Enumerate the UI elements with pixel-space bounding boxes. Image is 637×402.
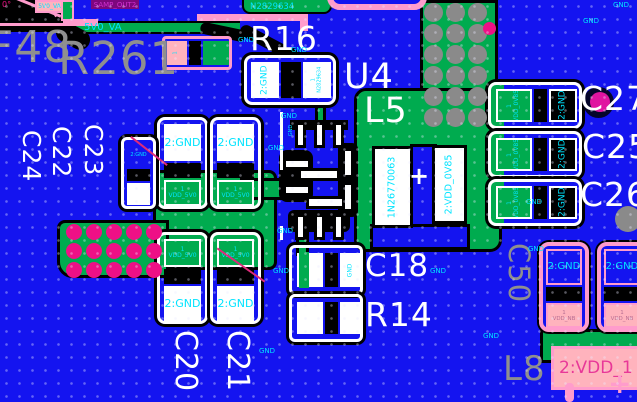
small-cap-gap bbox=[127, 169, 150, 181]
r16-pad-2-label: 2:GND bbox=[260, 65, 270, 94]
pink-cap-gap bbox=[546, 287, 582, 301]
c20-pad-2-label: 2:GND bbox=[165, 298, 201, 309]
u4-pad-net-label: GND bbox=[289, 125, 294, 136]
gnd-via-grid[interactable] bbox=[468, 45, 487, 64]
c25-pad-1-label: 1 VDD_0V85 bbox=[507, 139, 521, 171]
c18-pad-2[interactable]: GND bbox=[340, 253, 361, 287]
cap-pad-gap bbox=[164, 163, 201, 178]
component-r14[interactable] bbox=[289, 294, 363, 342]
pad-5v0-va[interactable]: 5V0_VA bbox=[35, 0, 64, 13]
net-label-gnd: GND bbox=[291, 47, 307, 54]
component-c27[interactable]: 1 VDD_0V85 2:GND bbox=[488, 82, 582, 129]
u4-pad-c1[interactable] bbox=[298, 168, 340, 181]
c27-pad-gap bbox=[534, 89, 547, 122]
c25-pad-2[interactable]: 2:GND bbox=[549, 138, 577, 171]
pink-cap-net: VDD_NB bbox=[611, 316, 634, 322]
small-cap-pad-2[interactable] bbox=[127, 183, 150, 205]
pad-5v0-va-label: 5V0_VA bbox=[38, 4, 61, 10]
designator-c20[interactable]: C20 bbox=[170, 330, 200, 392]
pink-via-grid[interactable] bbox=[86, 262, 102, 278]
cap-pad-gnd-label: 2:GND bbox=[218, 137, 254, 148]
c25-pad-1[interactable]: 1 VDD_0V85 bbox=[496, 138, 532, 171]
u4-pad-l2[interactable] bbox=[283, 184, 311, 196]
small-cap-pad-gnd[interactable]: 2:GND bbox=[127, 143, 150, 167]
pink-bar-bottom[interactable] bbox=[565, 383, 574, 402]
component-pink-cap-2[interactable]: 2:GND 1 VDD_NB bbox=[597, 242, 637, 332]
samp-out2-label: SAMP_OUT2 bbox=[94, 1, 137, 9]
cap-pad-gnd[interactable]: 2:GND bbox=[217, 124, 254, 161]
pink-cap-gnd-label: 2:GND bbox=[606, 262, 637, 272]
c20-pad-2[interactable]: 2:GND bbox=[164, 286, 201, 321]
pink-via-grid[interactable] bbox=[66, 224, 82, 240]
gnd-via-grid[interactable] bbox=[424, 24, 443, 43]
cap-pad-gnd[interactable]: 2:GND bbox=[164, 124, 201, 161]
r16-pad-1-label: 1 N2829634 bbox=[311, 67, 323, 93]
net-label-gnd: GND bbox=[259, 348, 275, 355]
pink-cap-gnd-label: 2:GND bbox=[548, 262, 581, 272]
net-label-n2829634: N2829634 bbox=[250, 3, 294, 12]
net-label-5v0-va: 5V0_VA bbox=[84, 23, 122, 33]
component-pink-cap-1[interactable]: 2:GND 1 VDD_NB bbox=[539, 242, 589, 332]
net-label-gnd: GND bbox=[613, 2, 629, 9]
c20-pad-1[interactable]: 1 VDD_5V0 bbox=[164, 239, 201, 267]
r261-pad-2[interactable] bbox=[203, 41, 229, 65]
c26-pad-2-label: 2:GND bbox=[558, 188, 568, 217]
designator-c21[interactable]: C21 bbox=[222, 330, 252, 392]
u4-pad-b2[interactable] bbox=[314, 214, 325, 240]
pink-via-grid[interactable] bbox=[86, 243, 102, 259]
component-small-cap[interactable]: 2:GND bbox=[121, 137, 156, 209]
designator-l5[interactable]: L5 bbox=[364, 94, 408, 129]
designator-c24[interactable]: C24 bbox=[19, 130, 44, 182]
net-label-gnd: GND bbox=[238, 37, 254, 44]
pink-cap-pad-gnd[interactable]: 2:GND bbox=[604, 249, 637, 285]
designator-u4[interactable]: U4 bbox=[344, 60, 394, 95]
component-c20[interactable]: 1 VDD_5V0 2:GND bbox=[157, 232, 208, 324]
cap-pad-gnd-label: 2:GND bbox=[165, 137, 201, 148]
l5-pad-1-label: 1N26770063 bbox=[387, 156, 398, 218]
copper-stripe-c18[interactable] bbox=[299, 252, 309, 288]
designator-c18[interactable]: C18 bbox=[365, 251, 429, 282]
r14-pad-gap bbox=[325, 302, 338, 334]
net-label-gnd: GND bbox=[528, 246, 544, 253]
c25-pad-gap bbox=[534, 138, 547, 171]
r14-pad-1[interactable] bbox=[297, 302, 323, 334]
pink-via-grid[interactable] bbox=[126, 262, 142, 278]
designator-c22[interactable]: C22 bbox=[49, 126, 74, 178]
net-label-gnd: GND bbox=[583, 18, 599, 25]
pad-small-green[interactable] bbox=[61, 0, 74, 21]
pink-cap-pad-vdd[interactable]: 1 VDD_NB bbox=[546, 303, 582, 328]
pink-cap-gap bbox=[604, 287, 637, 301]
c27-pad-1-label: 1 VDD_0V85 bbox=[507, 90, 521, 122]
pink-outline-top[interactable] bbox=[327, 0, 427, 10]
gnd-via-grid[interactable] bbox=[446, 87, 465, 106]
c26-pad-1-label: 1 VDD_0V85 bbox=[507, 187, 521, 219]
gnd-via-grid[interactable] bbox=[446, 3, 465, 22]
component-c25[interactable]: 1 VDD_0V85 2:GND bbox=[488, 131, 582, 178]
small-cap-gnd-label: 2:GND bbox=[130, 153, 146, 158]
cap-pad-vdd[interactable]: 1 VDD_5V0 bbox=[217, 180, 254, 206]
gnd-via-grid[interactable] bbox=[424, 66, 443, 85]
designator-r261[interactable]: R261 bbox=[58, 36, 179, 81]
gnd-via-grid[interactable] bbox=[424, 108, 443, 127]
u4-pad-r1[interactable] bbox=[342, 148, 354, 178]
gnd-via-grid[interactable] bbox=[468, 87, 487, 106]
c18-pad-gap bbox=[325, 253, 338, 287]
net-label-gnd: GND bbox=[273, 268, 289, 275]
pcb-canvas: 5V0_VA SAMP_OUT2 1 2:GND 1 N2829634 bbox=[0, 0, 637, 402]
u4-pad-b1[interactable] bbox=[295, 214, 306, 240]
gnd-via-grid[interactable] bbox=[468, 108, 487, 127]
magenta-via-edge[interactable] bbox=[483, 22, 496, 35]
u4-pad-b3[interactable] bbox=[333, 214, 344, 240]
pink-via-grid[interactable] bbox=[106, 243, 122, 259]
c27-pad-1[interactable]: 1 VDD_0V85 bbox=[496, 89, 532, 122]
c20-pad-gap bbox=[164, 269, 201, 284]
c25-pad-2-label: 2:GND bbox=[558, 140, 568, 169]
r14-pad-2[interactable] bbox=[340, 302, 361, 334]
cap-pad-net: VDD_5V0 bbox=[221, 193, 249, 199]
l5-pad-2[interactable]: 2:VDD_0V85 bbox=[432, 145, 467, 224]
pink-cap-pad-vdd[interactable]: 1 VDD_NB bbox=[604, 303, 637, 328]
c21-pad-2-label: 2:GND bbox=[218, 298, 254, 309]
r16-pad-1[interactable]: 1 N2829634 bbox=[303, 62, 331, 98]
r16-pad-gap bbox=[281, 62, 301, 98]
gnd-via-grid[interactable] bbox=[446, 24, 465, 43]
u4-pad-t1[interactable] bbox=[295, 122, 306, 148]
cap-pad-net: VDD_5V0 bbox=[168, 193, 196, 199]
c26-pad-2[interactable]: 2:GND bbox=[549, 186, 577, 219]
gnd-via-grid[interactable] bbox=[468, 66, 487, 85]
u4-pad-t3[interactable] bbox=[333, 122, 344, 148]
pink-via-grid[interactable] bbox=[66, 243, 82, 259]
designator-c25[interactable]: C25 bbox=[582, 130, 637, 163]
cap-pad-gap bbox=[217, 163, 254, 178]
c27-pad-2[interactable]: 2:GND bbox=[549, 89, 577, 122]
l5-pad-2-label: 2:VDD_0V85 bbox=[444, 155, 455, 215]
net-label-gnd: GND bbox=[281, 113, 297, 120]
designator-r14[interactable]: R14 bbox=[365, 298, 433, 331]
gnd-via-grid[interactable] bbox=[424, 87, 443, 106]
pink-cap-pad-gnd[interactable]: 2:GND bbox=[546, 249, 582, 285]
l8-polarity-mark: + bbox=[608, 370, 631, 398]
cap-pad-net: VDD_5V0 bbox=[168, 253, 196, 259]
gnd-via-grid[interactable] bbox=[424, 45, 443, 64]
designator-l8[interactable]: L8 bbox=[503, 352, 546, 386]
gnd-via-grid[interactable] bbox=[446, 108, 465, 127]
component-r16[interactable]: 2:GND 1 N2829634 bbox=[244, 55, 336, 105]
gnd-via-grid[interactable] bbox=[446, 45, 465, 64]
samp-out2-box[interactable]: SAMP_OUT2 bbox=[91, 0, 139, 9]
designator-c27[interactable]: C27 bbox=[580, 82, 637, 115]
c18-pad-2-label: GND bbox=[347, 263, 354, 277]
designator-c23[interactable]: C23 bbox=[81, 124, 106, 176]
u4-pad-t2[interactable] bbox=[314, 122, 325, 148]
net-label-gnd: GND bbox=[483, 333, 499, 340]
net-label-gnd: GND bbox=[526, 199, 542, 206]
gnd-via-grid[interactable] bbox=[424, 3, 443, 22]
pink-cap-net: VDD_NB bbox=[553, 316, 576, 322]
pink-via-grid[interactable] bbox=[66, 262, 82, 278]
c27-pad-2-label: 2:GND bbox=[558, 91, 568, 120]
cap-pad-vdd[interactable]: 1 VDD_5V0 bbox=[164, 180, 201, 206]
pink-via-grid[interactable] bbox=[126, 224, 142, 240]
origin-marker: 0° bbox=[2, 0, 11, 9]
pink-via-grid[interactable] bbox=[146, 262, 162, 278]
pink-via-grid[interactable] bbox=[126, 243, 142, 259]
l5-polarity-mark: + bbox=[409, 164, 429, 188]
designator-r16[interactable]: R16 bbox=[250, 22, 318, 55]
net-label-gnd: GND bbox=[430, 268, 446, 275]
component-cap-row1-right[interactable]: 2:GND 1 VDD_5V0 bbox=[210, 117, 261, 209]
pink-via-grid[interactable] bbox=[106, 224, 122, 240]
r261-pad-gap bbox=[189, 41, 201, 65]
r16-pad-2[interactable]: 2:GND bbox=[251, 62, 279, 98]
net-label-gnd: GND bbox=[268, 145, 284, 152]
pink-via-grid[interactable] bbox=[146, 243, 162, 259]
gnd-via-grid[interactable] bbox=[446, 66, 465, 85]
pink-via-grid[interactable] bbox=[106, 262, 122, 278]
pink-via-grid[interactable] bbox=[146, 224, 162, 240]
pink-via-grid[interactable] bbox=[86, 224, 102, 240]
l5-pad-1[interactable]: 1N26770063 bbox=[372, 146, 413, 228]
net-label-gnd: GND bbox=[277, 228, 293, 235]
c21-pad-2[interactable]: 2:GND bbox=[217, 286, 254, 321]
gray-via[interactable] bbox=[615, 206, 637, 232]
component-c21[interactable]: 1 VDD_5V0 2:GND bbox=[210, 232, 261, 324]
u4-pad-r2[interactable] bbox=[342, 182, 354, 212]
gnd-via-grid[interactable] bbox=[468, 3, 487, 22]
